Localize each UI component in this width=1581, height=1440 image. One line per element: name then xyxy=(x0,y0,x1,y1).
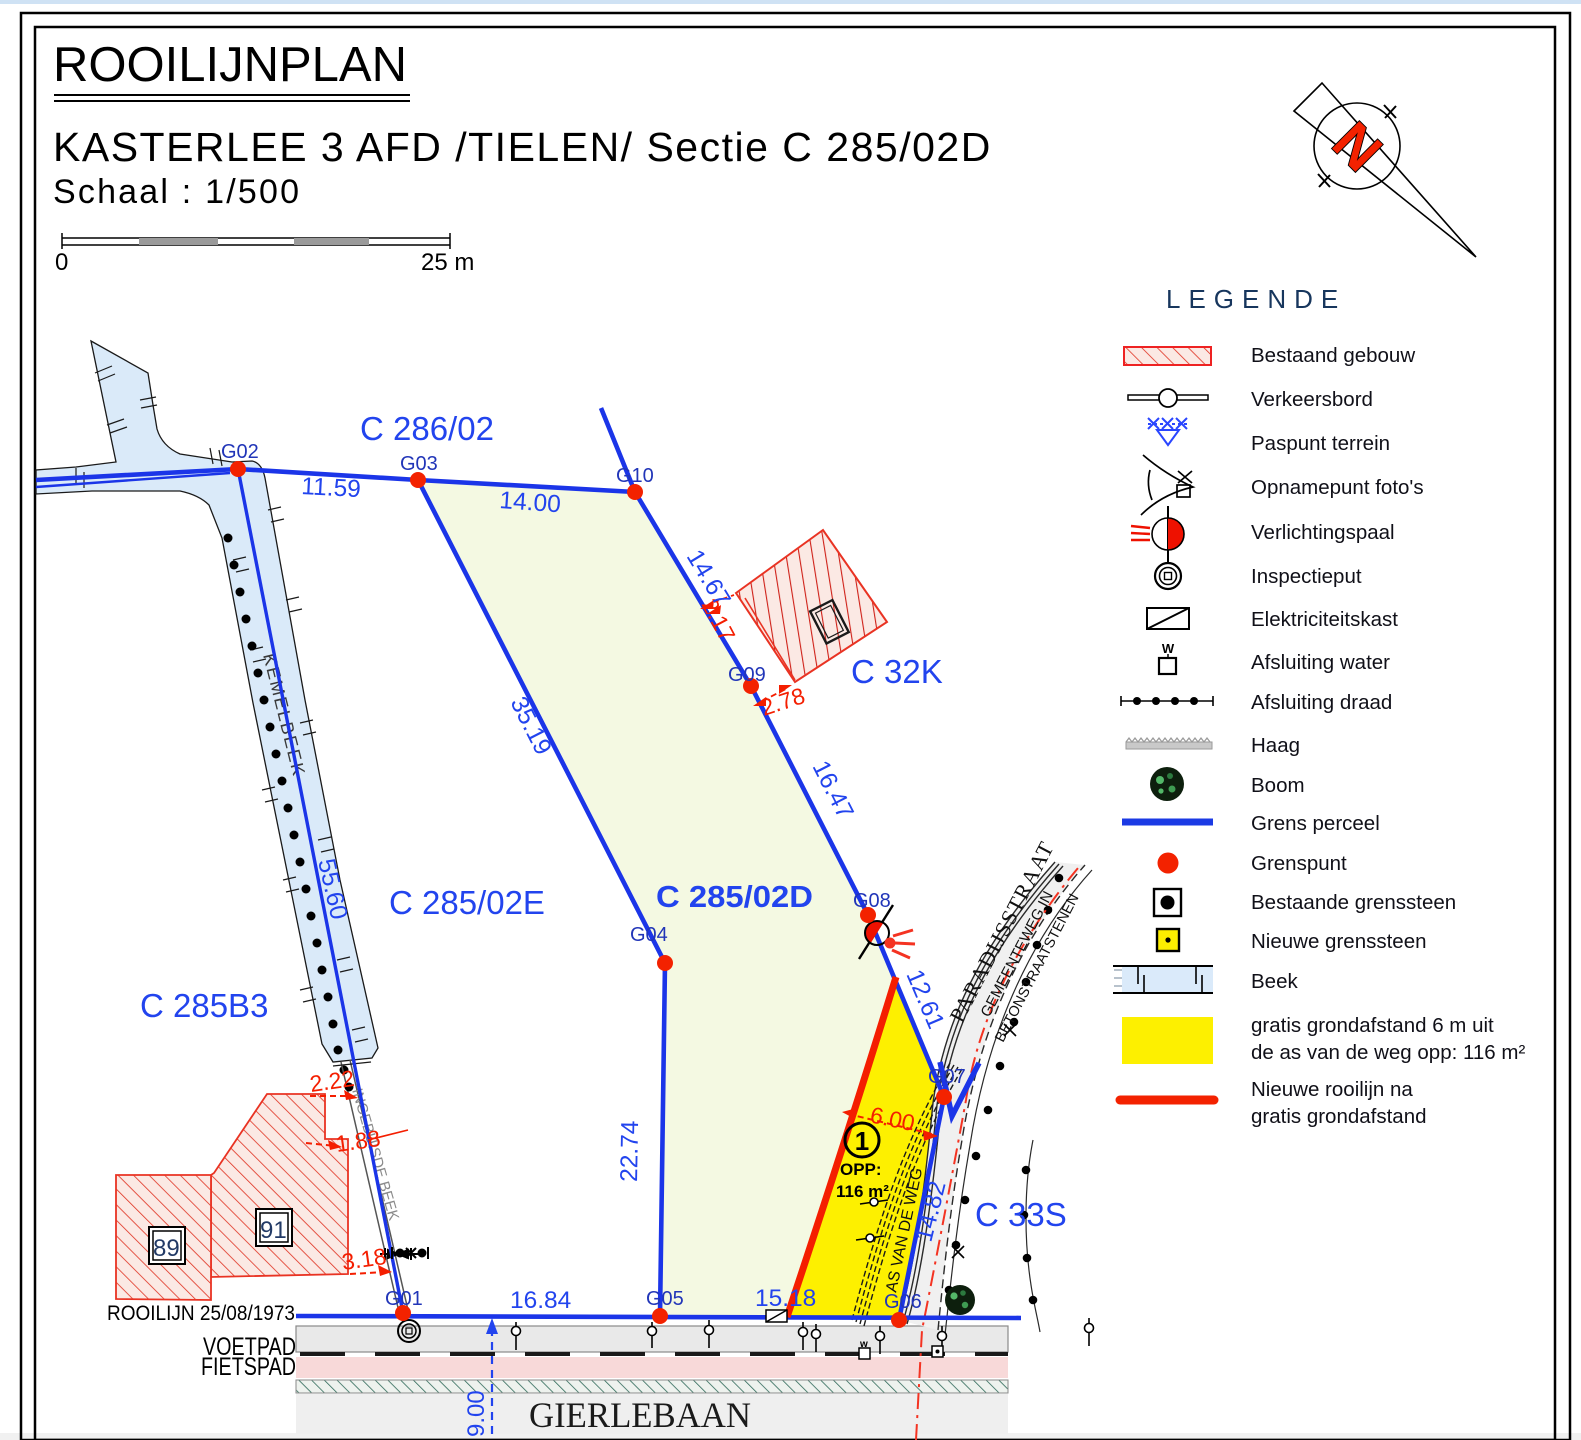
svg-text:Grens perceel: Grens perceel xyxy=(1251,812,1380,835)
svg-text:116 m²: 116 m² xyxy=(836,1182,889,1201)
svg-text:16.84: 16.84 xyxy=(510,1287,571,1314)
svg-text:Verlichtingspaal: Verlichtingspaal xyxy=(1251,521,1395,544)
svg-text:G08: G08 xyxy=(853,890,891,912)
svg-text:G05: G05 xyxy=(646,1288,684,1310)
svg-text:Paspunt terrein: Paspunt terrein xyxy=(1251,432,1390,455)
svg-text:14.00: 14.00 xyxy=(499,487,562,518)
svg-text:Bestaand gebouw: Bestaand gebouw xyxy=(1251,344,1415,367)
svg-text:Elektriciteitskast: Elektriciteitskast xyxy=(1251,608,1398,631)
svg-text:gratis grondafstand: gratis grondafstand xyxy=(1251,1105,1427,1128)
svg-text:GIERLEBAAN: GIERLEBAAN xyxy=(529,1395,751,1435)
svg-text:Haag: Haag xyxy=(1251,734,1300,757)
svg-text:G10: G10 xyxy=(616,465,654,487)
svg-text:C 285/02E: C 285/02E xyxy=(389,884,545,921)
svg-text:G02: G02 xyxy=(221,441,259,463)
svg-text:15.18: 15.18 xyxy=(755,1285,816,1312)
svg-text:Verkeersbord: Verkeersbord xyxy=(1251,388,1373,411)
svg-text:FIETSPAD: FIETSPAD xyxy=(201,1353,296,1381)
svg-text:22.74: 22.74 xyxy=(616,1120,644,1182)
svg-text:G04: G04 xyxy=(630,924,668,946)
svg-text:C 285B3: C 285B3 xyxy=(140,987,268,1024)
svg-text:89: 89 xyxy=(153,1235,180,1262)
svg-text:LEGENDE: LEGENDE xyxy=(1166,284,1346,314)
svg-text:11.59: 11.59 xyxy=(301,473,362,503)
svg-text:Opnamepunt foto's: Opnamepunt foto's xyxy=(1251,476,1424,499)
svg-text:KASTERLEE 3 AFD /TIELEN/ Secti: KASTERLEE 3 AFD /TIELEN/ Sectie C 285/02… xyxy=(53,124,992,170)
svg-text:C 32K: C 32K xyxy=(851,653,943,690)
svg-text:G06: G06 xyxy=(884,1291,922,1313)
svg-text:OPP:: OPP: xyxy=(840,1160,882,1179)
svg-text:Boom: Boom xyxy=(1251,774,1305,797)
svg-text:Inspectieput: Inspectieput xyxy=(1251,565,1362,588)
svg-text:ROOILIJN 25/08/1973: ROOILIJN 25/08/1973 xyxy=(107,1302,295,1325)
svg-text:de as van de weg opp: 116 m²: de as van de weg opp: 116 m² xyxy=(1251,1041,1525,1064)
svg-text:Nieuwe grenssteen: Nieuwe grenssteen xyxy=(1251,930,1427,953)
svg-text:C 33S: C 33S xyxy=(975,1196,1067,1233)
svg-text:Afsluiting draad: Afsluiting draad xyxy=(1251,691,1392,714)
svg-text:gratis grondafstand 6 m uit: gratis grondafstand 6 m uit xyxy=(1251,1014,1494,1037)
svg-text:C 285/02D: C 285/02D xyxy=(656,879,813,914)
svg-text:91: 91 xyxy=(260,1217,287,1244)
svg-text:Afsluiting water: Afsluiting water xyxy=(1251,651,1390,674)
svg-text:0: 0 xyxy=(55,249,68,276)
svg-text:G01: G01 xyxy=(385,1288,423,1310)
svg-text:Bestaande grenssteen: Bestaande grenssteen xyxy=(1251,891,1456,914)
svg-text:Schaal : 1/500: Schaal : 1/500 xyxy=(53,173,301,211)
svg-text:1: 1 xyxy=(855,1126,869,1156)
svg-text:9.00: 9.00 xyxy=(463,1390,490,1437)
svg-text:C 286/02: C 286/02 xyxy=(360,410,494,447)
svg-text:ROOILIJNPLAN: ROOILIJNPLAN xyxy=(53,38,407,92)
svg-text:Beek: Beek xyxy=(1251,970,1298,993)
svg-text:25 m: 25 m xyxy=(421,249,474,276)
svg-text:W: W xyxy=(1162,641,1175,656)
svg-text:G03: G03 xyxy=(400,453,438,475)
svg-text:Grenspunt: Grenspunt xyxy=(1251,852,1347,875)
svg-text:Nieuwe rooilijn na: Nieuwe rooilijn na xyxy=(1251,1078,1413,1101)
svg-text:G07: G07 xyxy=(928,1066,966,1088)
svg-text:G09: G09 xyxy=(728,664,766,686)
